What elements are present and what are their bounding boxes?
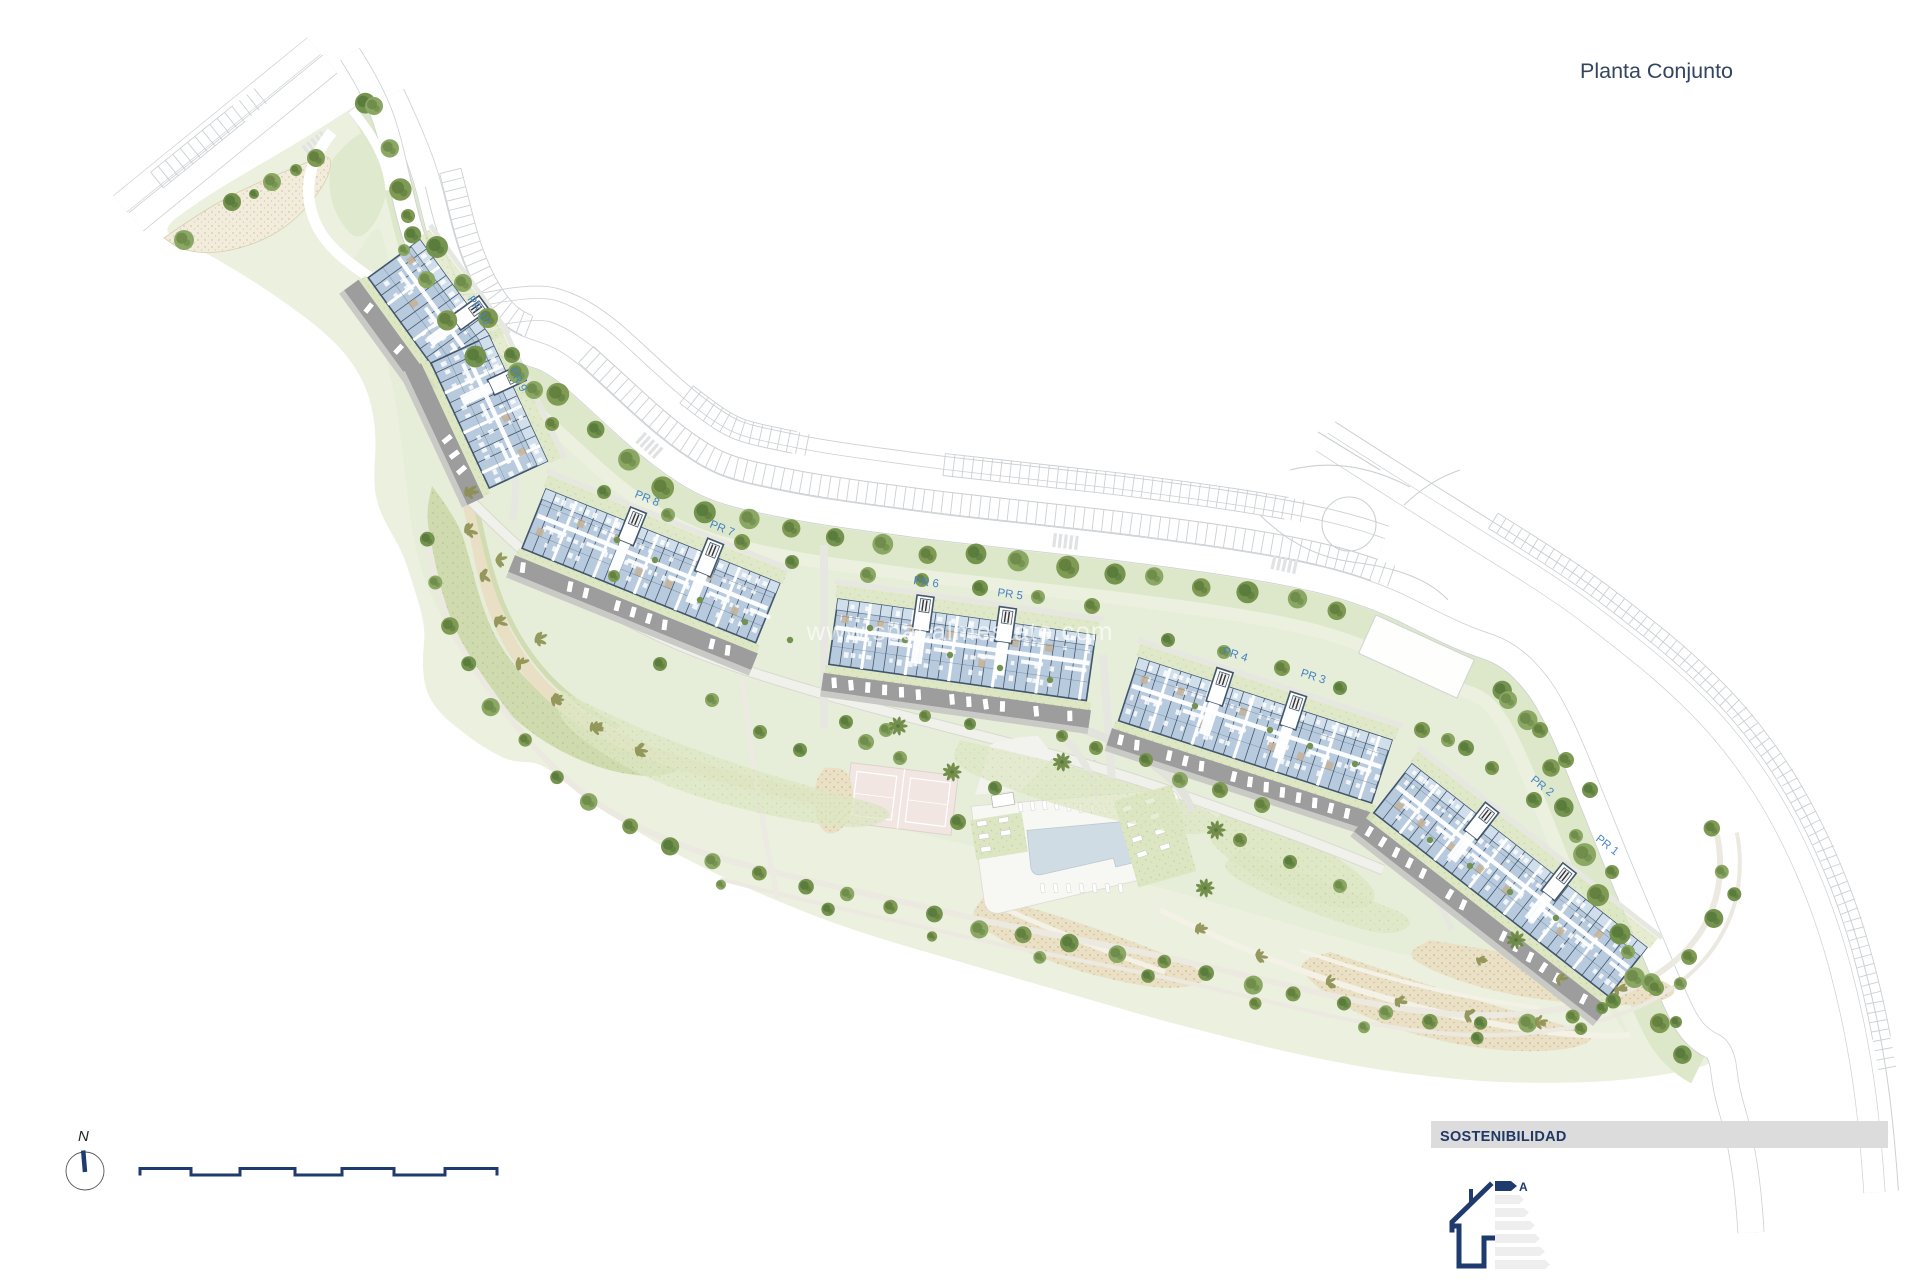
svg-text:SOSTENIBILIDAD: SOSTENIBILIDAD bbox=[1440, 1129, 1567, 1145]
svg-text:www.spacalmestate.com: www.spacalmestate.com bbox=[805, 616, 1113, 646]
svg-text:A: A bbox=[1519, 1180, 1528, 1194]
svg-text:N: N bbox=[78, 1128, 89, 1145]
svg-text:Planta Conjunto: Planta Conjunto bbox=[1580, 59, 1733, 83]
